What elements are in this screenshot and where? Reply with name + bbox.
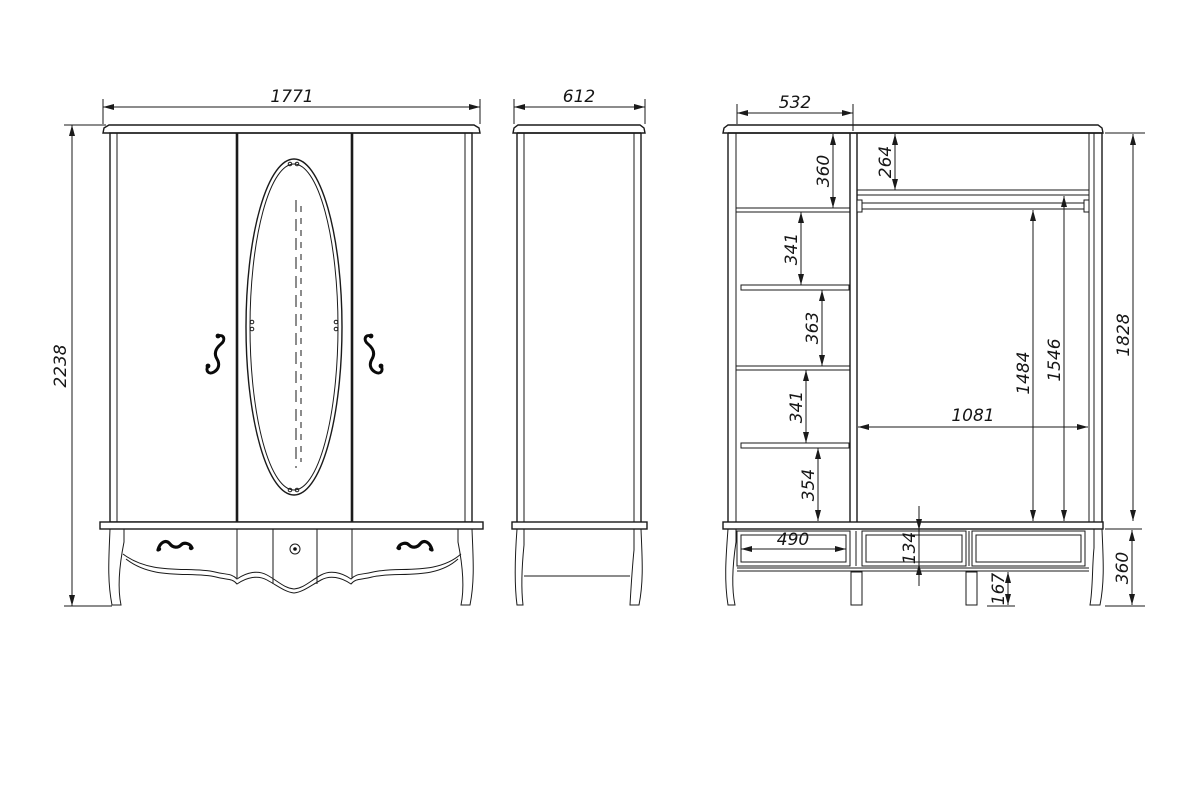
dim-rod-clearance: 1484: [1014, 351, 1034, 394]
side-dimensions: 612: [514, 87, 645, 124]
dim-interior-height: 1828: [1114, 313, 1134, 356]
center-knob-dot: [293, 547, 297, 551]
dim-drawer-width: 490: [777, 530, 809, 550]
dim-hanging-width: 1081: [951, 406, 994, 426]
front-cornice: [103, 125, 480, 133]
dim-compartment-5: 354: [799, 469, 819, 501]
side-cornice: [513, 125, 645, 133]
dim-compartment-2: 341: [782, 233, 802, 265]
technical-drawing-canvas: 1771 2238 612: [0, 0, 1200, 809]
right-drawer-handle: [397, 542, 433, 552]
dim-side-depth: 612: [563, 87, 595, 107]
front-apron-curve-inner: [126, 559, 458, 593]
hanging-compartment: [857, 190, 1089, 212]
drawer-opening-right-inner: [976, 535, 1081, 562]
dim-left-column-width: 532: [779, 93, 811, 113]
front-view: 1771 2238: [51, 87, 483, 606]
section-left-leg: [726, 529, 736, 605]
rod-bracket-left: [857, 200, 862, 212]
section-middle-leg: [966, 572, 977, 605]
section-cornice: [723, 125, 1103, 133]
hanging-rod: [862, 203, 1084, 209]
dim-top-shelf-drop: 264: [876, 146, 896, 178]
dim-front-height: 2238: [51, 344, 71, 387]
front-left-leg: [109, 529, 124, 605]
rod-bracket-right: [1084, 200, 1089, 212]
dim-front-width: 1771: [270, 87, 313, 107]
front-apron-curve: [123, 554, 461, 589]
front-base: [100, 522, 483, 605]
dim-base-height: 360: [1113, 552, 1133, 584]
dim-compartment-3: 363: [803, 312, 823, 344]
front-base-rail: [100, 522, 483, 529]
section-right-leg: [1090, 529, 1103, 605]
front-carcass: [103, 125, 480, 522]
side-base-rail: [512, 522, 647, 529]
section-middle-leg: [851, 572, 862, 605]
drawer-opening-right: [972, 531, 1085, 566]
side-view: 612: [512, 87, 647, 605]
left-drawer-handle: [157, 542, 193, 552]
front-body-outline: [110, 133, 472, 522]
side-back-leg: [630, 529, 642, 605]
left-door-handle: [206, 334, 224, 373]
section-view: 532 360 341 363 341 354 264 1484 1546 1: [723, 93, 1145, 606]
dim-top-compartment: 360: [814, 155, 834, 187]
right-door-handle: [365, 334, 383, 373]
dim-underframe-clearance: 167: [989, 573, 1009, 606]
dim-compartment-4: 341: [787, 391, 807, 423]
shelf-4: [741, 443, 849, 448]
oval-mirror: [246, 159, 342, 495]
front-right-leg: [458, 529, 473, 605]
side-front-leg: [515, 529, 524, 605]
dim-shelf-clearance: 1546: [1045, 338, 1065, 381]
front-doors: [206, 133, 384, 522]
dim-drawer-opening-height: 134: [900, 532, 920, 564]
shelf-2: [741, 285, 849, 290]
section-base-rail: [723, 522, 1103, 529]
